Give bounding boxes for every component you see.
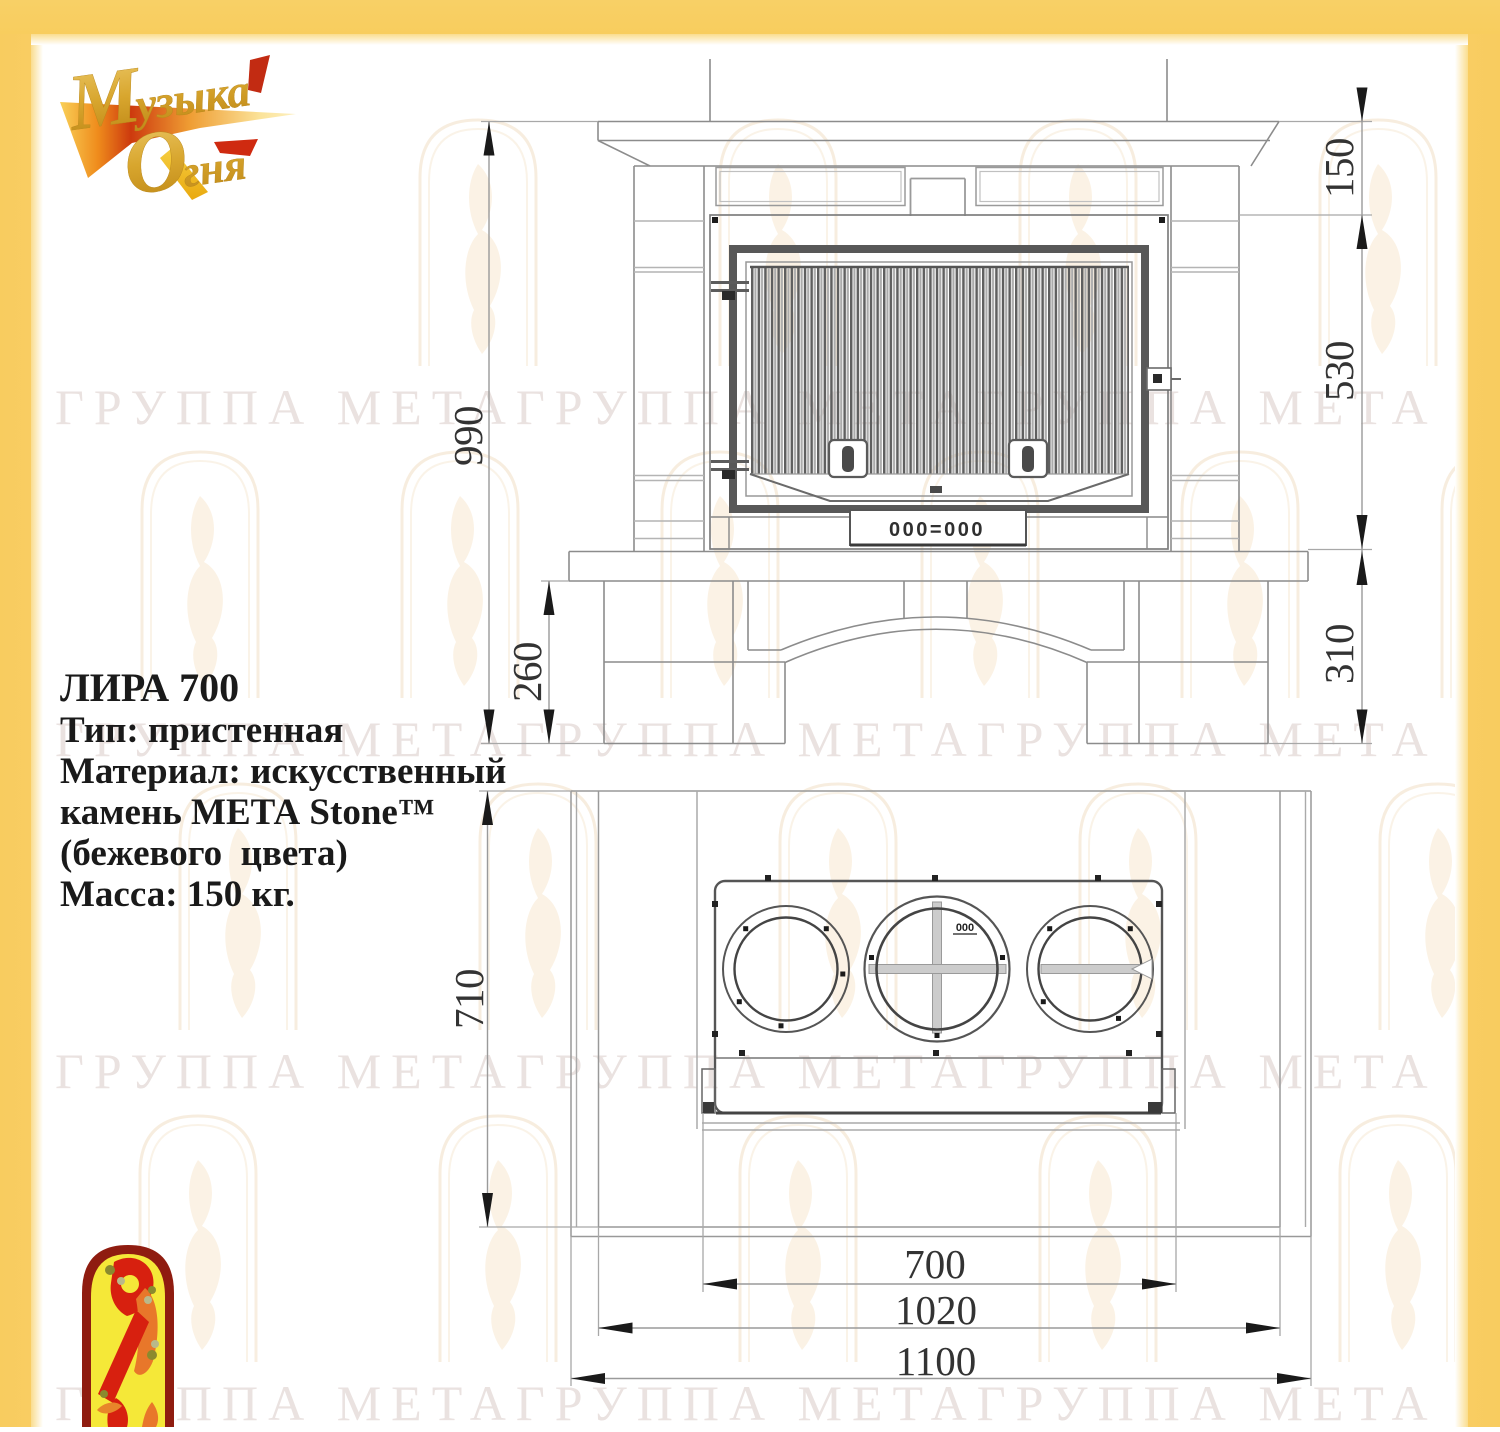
svg-text:Тип: пристенная: Тип: пристенная xyxy=(60,710,343,751)
svg-text:530: 530 xyxy=(1316,341,1362,401)
svg-text:150: 150 xyxy=(1316,138,1362,198)
svg-text:310: 310 xyxy=(1316,624,1362,684)
svg-text:ЛИРА 700: ЛИРА 700 xyxy=(60,665,239,710)
svg-text:1100: 1100 xyxy=(896,1338,976,1384)
svg-text:260: 260 xyxy=(504,642,550,702)
svg-text:ГРУППА МЕТАГРУППА МЕТАГРУППА М: ГРУППА МЕТАГРУППА МЕТАГРУППА МЕТА xyxy=(55,1043,1438,1099)
svg-text:000: 000 xyxy=(956,922,974,934)
svg-text:710: 710 xyxy=(446,969,492,1029)
svg-text:700: 700 xyxy=(904,1241,966,1287)
svg-text:Материал: искусственный: Материал: искусственный xyxy=(60,751,506,792)
svg-text:990: 990 xyxy=(445,406,491,466)
svg-text:ГРУППА МЕТАГРУППА МЕТАГРУППА М: ГРУППА МЕТАГРУППА МЕТАГРУППА МЕТА xyxy=(55,1375,1438,1427)
svg-text:000=000: 000=000 xyxy=(889,519,985,541)
svg-text:камень МЕТА Stone™: камень МЕТА Stone™ xyxy=(60,792,435,833)
svg-text:Масса: 150 кг.: Масса: 150 кг. xyxy=(60,874,295,915)
svg-text:(бежевого цвета): (бежевого цвета) xyxy=(60,833,348,874)
svg-text:1020: 1020 xyxy=(895,1287,977,1333)
